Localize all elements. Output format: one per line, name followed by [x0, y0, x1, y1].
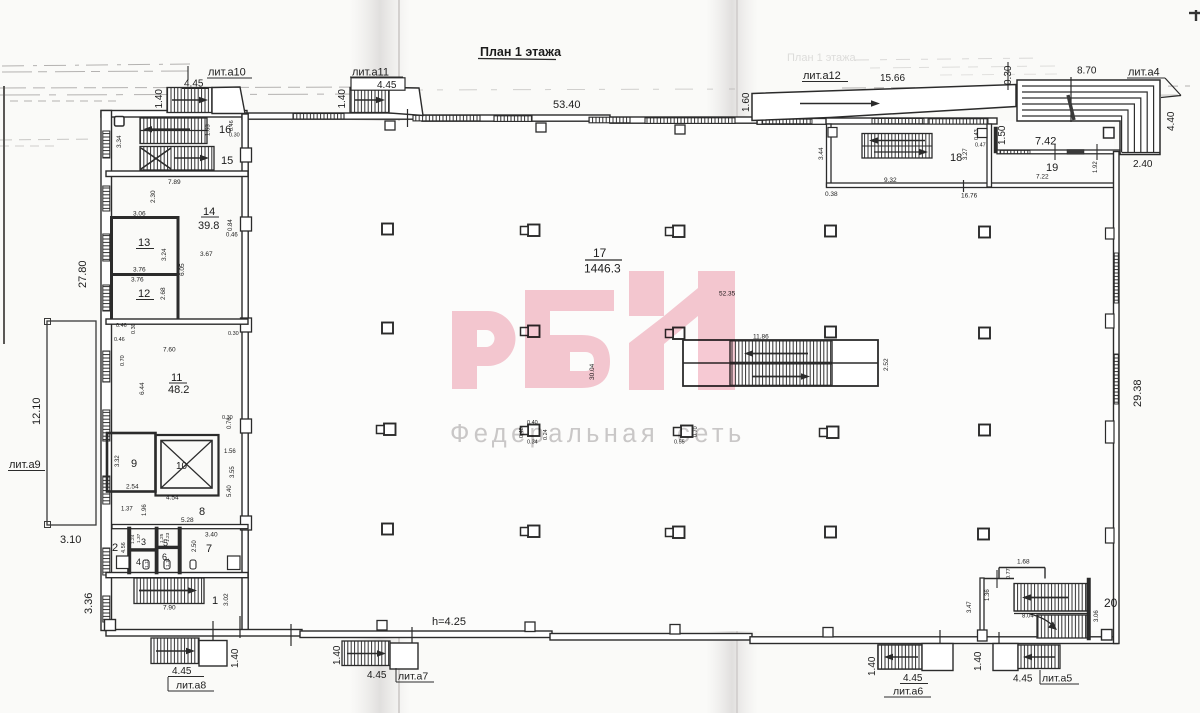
svg-text:27.80: 27.80 — [77, 260, 89, 288]
svg-text:9.32: 9.32 — [884, 177, 897, 184]
svg-text:1.11: 1.11 — [165, 558, 171, 567]
svg-text:Федеральная: Федеральная — [450, 420, 659, 448]
svg-text:1.40: 1.40 — [973, 651, 984, 671]
svg-text:1.60: 1.60 — [741, 92, 752, 112]
svg-text:лит.а9: лит.а9 — [9, 459, 41, 471]
svg-text:7.22: 7.22 — [1036, 174, 1049, 181]
svg-text:2.54: 2.54 — [126, 484, 139, 491]
svg-text:0.46: 0.46 — [114, 337, 125, 343]
svg-text:1.36: 1.36 — [985, 589, 991, 601]
svg-text:15: 15 — [221, 155, 233, 167]
svg-text:4.40: 4.40 — [1166, 111, 1177, 131]
svg-text:3.44: 3.44 — [818, 147, 825, 160]
svg-text:3.10: 3.10 — [60, 534, 81, 546]
svg-text:3.76: 3.76 — [133, 267, 146, 274]
svg-text:6.05: 6.05 — [179, 263, 186, 276]
svg-text:16.76: 16.76 — [961, 193, 978, 200]
svg-text:2: 2 — [112, 542, 118, 554]
svg-text:20: 20 — [1104, 596, 1118, 610]
svg-text:1.68: 1.68 — [1017, 559, 1030, 566]
svg-text:0.46: 0.46 — [116, 323, 127, 329]
svg-text:3.67: 3.67 — [200, 251, 213, 258]
svg-text:15.66: 15.66 — [880, 73, 905, 84]
svg-text:1.37: 1.37 — [136, 533, 142, 543]
svg-text:0.46: 0.46 — [229, 120, 235, 131]
svg-text:4.45: 4.45 — [172, 666, 192, 677]
svg-text:лит.а10: лит.а10 — [208, 67, 246, 79]
svg-text:3.06: 3.06 — [1094, 610, 1100, 622]
svg-text:2.50: 2.50 — [192, 540, 198, 552]
svg-text:3.40: 3.40 — [205, 532, 218, 539]
svg-text:3.02: 3.02 — [223, 593, 230, 606]
svg-text:3.47: 3.47 — [967, 601, 973, 613]
svg-text:7.89: 7.89 — [168, 179, 181, 186]
svg-text:4.45: 4.45 — [367, 670, 387, 681]
svg-text:10: 10 — [176, 461, 188, 472]
svg-text:0.30: 0.30 — [229, 133, 240, 139]
svg-text:12.10: 12.10 — [31, 397, 43, 425]
svg-text:2.52: 2.52 — [883, 358, 890, 371]
svg-text:5.40: 5.40 — [227, 485, 233, 497]
svg-text:2.40: 2.40 — [1133, 159, 1153, 170]
svg-text:2.68: 2.68 — [160, 287, 167, 300]
svg-text:7: 7 — [206, 543, 212, 555]
svg-text:1.92: 1.92 — [1093, 161, 1099, 173]
svg-text:0.30: 0.30 — [131, 323, 137, 334]
svg-text:48.2: 48.2 — [168, 384, 189, 396]
svg-text:0.84: 0.84 — [228, 219, 234, 231]
svg-text:лит.а6: лит.а6 — [893, 686, 923, 698]
svg-text:1.23: 1.23 — [165, 532, 171, 542]
svg-text:7.42: 7.42 — [1035, 136, 1056, 148]
svg-text:3.27: 3.27 — [963, 148, 969, 160]
svg-text:14: 14 — [203, 206, 215, 218]
svg-text:1446.3: 1446.3 — [584, 262, 621, 276]
svg-text:лит.а12: лит.а12 — [803, 70, 841, 82]
svg-text:1: 1 — [212, 595, 218, 607]
svg-text:19: 19 — [1046, 162, 1058, 174]
svg-text:7.90: 7.90 — [163, 605, 176, 612]
svg-text:1.25: 1.25 — [159, 533, 165, 543]
svg-text:11: 11 — [171, 372, 182, 384]
svg-text:План 1 этажа: План 1 этажа — [787, 52, 857, 64]
svg-text:1.37: 1.37 — [121, 507, 133, 513]
svg-text:1.24: 1.24 — [130, 534, 136, 544]
svg-text:53.40: 53.40 — [553, 99, 581, 111]
svg-text:0.47: 0.47 — [975, 143, 986, 149]
svg-text:1.40: 1.40 — [337, 89, 348, 109]
svg-text:1.50: 1.50 — [997, 125, 1008, 145]
svg-text:9: 9 — [131, 458, 137, 470]
svg-text:сеть: сеть — [677, 420, 746, 448]
svg-text:18: 18 — [950, 152, 962, 164]
svg-text:2.30: 2.30 — [150, 190, 157, 203]
svg-text:4.45: 4.45 — [377, 80, 397, 91]
svg-text:8.04: 8.04 — [1022, 614, 1034, 620]
svg-text:5.28: 5.28 — [181, 517, 194, 524]
svg-text:12: 12 — [138, 288, 150, 300]
svg-text:3.32: 3.32 — [115, 455, 121, 467]
svg-text:4.45: 4.45 — [184, 79, 204, 90]
svg-text:17: 17 — [593, 246, 607, 260]
svg-text:1.96: 1.96 — [142, 504, 148, 516]
svg-text:лит.а4: лит.а4 — [1128, 67, 1160, 79]
svg-text:1.40: 1.40 — [230, 648, 241, 668]
svg-text:лит.а5: лит.а5 — [1042, 673, 1072, 685]
svg-text:3.76: 3.76 — [131, 277, 144, 284]
svg-text:8.70: 8.70 — [1077, 66, 1097, 77]
svg-text:1.63: 1.63 — [206, 124, 212, 136]
svg-text:0.30: 0.30 — [222, 415, 233, 421]
svg-text:1.40: 1.40 — [867, 656, 878, 676]
svg-text:0.46: 0.46 — [226, 233, 238, 239]
svg-text:39.8: 39.8 — [198, 220, 219, 232]
svg-text:8: 8 — [199, 506, 205, 518]
svg-text:лит.а7: лит.а7 — [398, 671, 428, 683]
svg-text:3.55: 3.55 — [230, 466, 236, 478]
svg-text:6.44: 6.44 — [139, 382, 146, 395]
svg-text:1.40: 1.40 — [154, 89, 165, 109]
svg-text:3.36: 3.36 — [83, 593, 95, 614]
svg-text:29.38: 29.38 — [1132, 379, 1144, 407]
svg-text:0.30: 0.30 — [228, 331, 239, 337]
svg-text:3.06: 3.06 — [133, 211, 146, 218]
svg-text:0.70: 0.70 — [120, 355, 126, 366]
svg-text:4.54: 4.54 — [166, 495, 179, 502]
svg-text:11.86: 11.86 — [753, 334, 769, 341]
svg-text:3.34: 3.34 — [116, 135, 123, 148]
svg-text:1.11: 1.11 — [144, 559, 150, 568]
svg-text:4: 4 — [136, 557, 141, 567]
svg-text:лит.а8: лит.а8 — [176, 680, 206, 692]
svg-text:3.24: 3.24 — [161, 248, 168, 261]
svg-text:4.56: 4.56 — [121, 542, 127, 553]
svg-text:4.45: 4.45 — [903, 673, 923, 684]
svg-text:h=4.25: h=4.25 — [432, 616, 466, 628]
svg-text:План 1 этажа: План 1 этажа — [480, 45, 562, 59]
svg-text:4.45: 4.45 — [1013, 674, 1033, 685]
svg-text:0.77: 0.77 — [1006, 568, 1012, 579]
svg-text:13: 13 — [138, 237, 150, 249]
svg-text:0.43: 0.43 — [974, 129, 980, 140]
svg-text:7.60: 7.60 — [163, 347, 176, 354]
svg-text:1.56: 1.56 — [224, 449, 236, 455]
svg-text:0.38: 0.38 — [825, 191, 838, 198]
